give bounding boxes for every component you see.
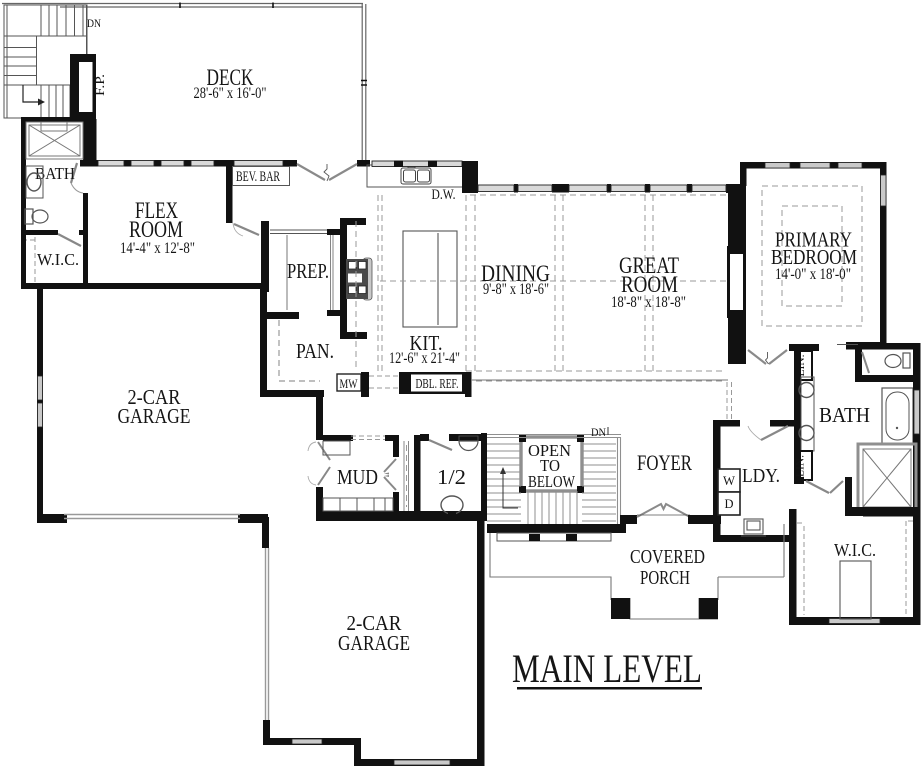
svg-text:DBL. REF.: DBL. REF. — [416, 376, 459, 391]
svg-text:W.I.C.: W.I.C. — [37, 250, 79, 269]
svg-text:1/2: 1/2 — [437, 465, 466, 489]
svg-text:9'-8" x 18'-6": 9'-8" x 18'-6" — [483, 281, 549, 298]
svg-text:FOYER: FOYER — [637, 450, 692, 475]
svg-text:MAIN LEVEL: MAIN LEVEL — [512, 646, 702, 691]
svg-text:14'-0" x 18'-0": 14'-0" x 18'-0" — [775, 266, 851, 283]
svg-text:BEV. BAR: BEV. BAR — [236, 169, 280, 185]
svg-text:12'-6" x 21'-4": 12'-6" x 21'-4" — [389, 350, 460, 367]
svg-text:D: D — [725, 496, 734, 511]
svg-text:MW: MW — [340, 376, 359, 391]
svg-text:MUD: MUD — [337, 465, 378, 489]
svg-text:GARAGE: GARAGE — [338, 631, 410, 655]
svg-text:LDY.: LDY. — [742, 466, 780, 487]
svg-text:DN: DN — [591, 425, 606, 439]
svg-text:W.I.C.: W.I.C. — [834, 540, 876, 560]
svg-text:PAN.: PAN. — [296, 339, 334, 363]
svg-text:18'-8" x 18'-8": 18'-8" x 18'-8" — [611, 294, 686, 311]
svg-text:ROOM: ROOM — [129, 217, 183, 242]
svg-text:14'-4" x 12'-8": 14'-4" x 12'-8" — [120, 240, 195, 257]
svg-text:BELOW: BELOW — [528, 472, 576, 491]
svg-text:PREP.: PREP. — [287, 259, 329, 283]
svg-text:W: W — [723, 473, 736, 488]
svg-text:LIN.: LIN. — [793, 455, 807, 477]
svg-text:PORCH: PORCH — [640, 567, 690, 589]
svg-text:BATH: BATH — [819, 403, 870, 427]
svg-text:28'-6" x 16'-0": 28'-6" x 16'-0" — [194, 85, 267, 102]
svg-text:COVERED: COVERED — [630, 546, 705, 568]
svg-text:DN: DN — [87, 16, 101, 30]
svg-text:GARAGE: GARAGE — [118, 404, 191, 428]
svg-text:F.P.: F.P. — [93, 74, 107, 96]
svg-text:D.W.: D.W. — [432, 187, 456, 203]
